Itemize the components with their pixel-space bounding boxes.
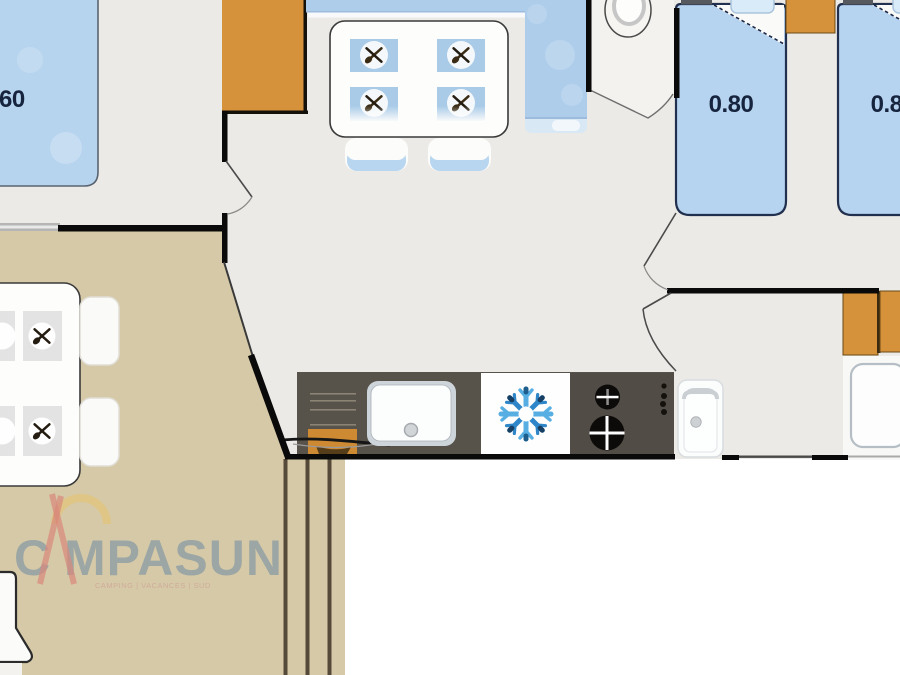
svg-text:0.80: 0.80	[709, 91, 754, 118]
svg-text:60: 60	[0, 86, 25, 113]
svg-text:CAMPING | VACANCES | SUD: CAMPING | VACANCES | SUD	[95, 581, 211, 590]
svg-text:MPASUN: MPASUN	[64, 530, 283, 586]
svg-text:0.80: 0.80	[871, 91, 900, 118]
